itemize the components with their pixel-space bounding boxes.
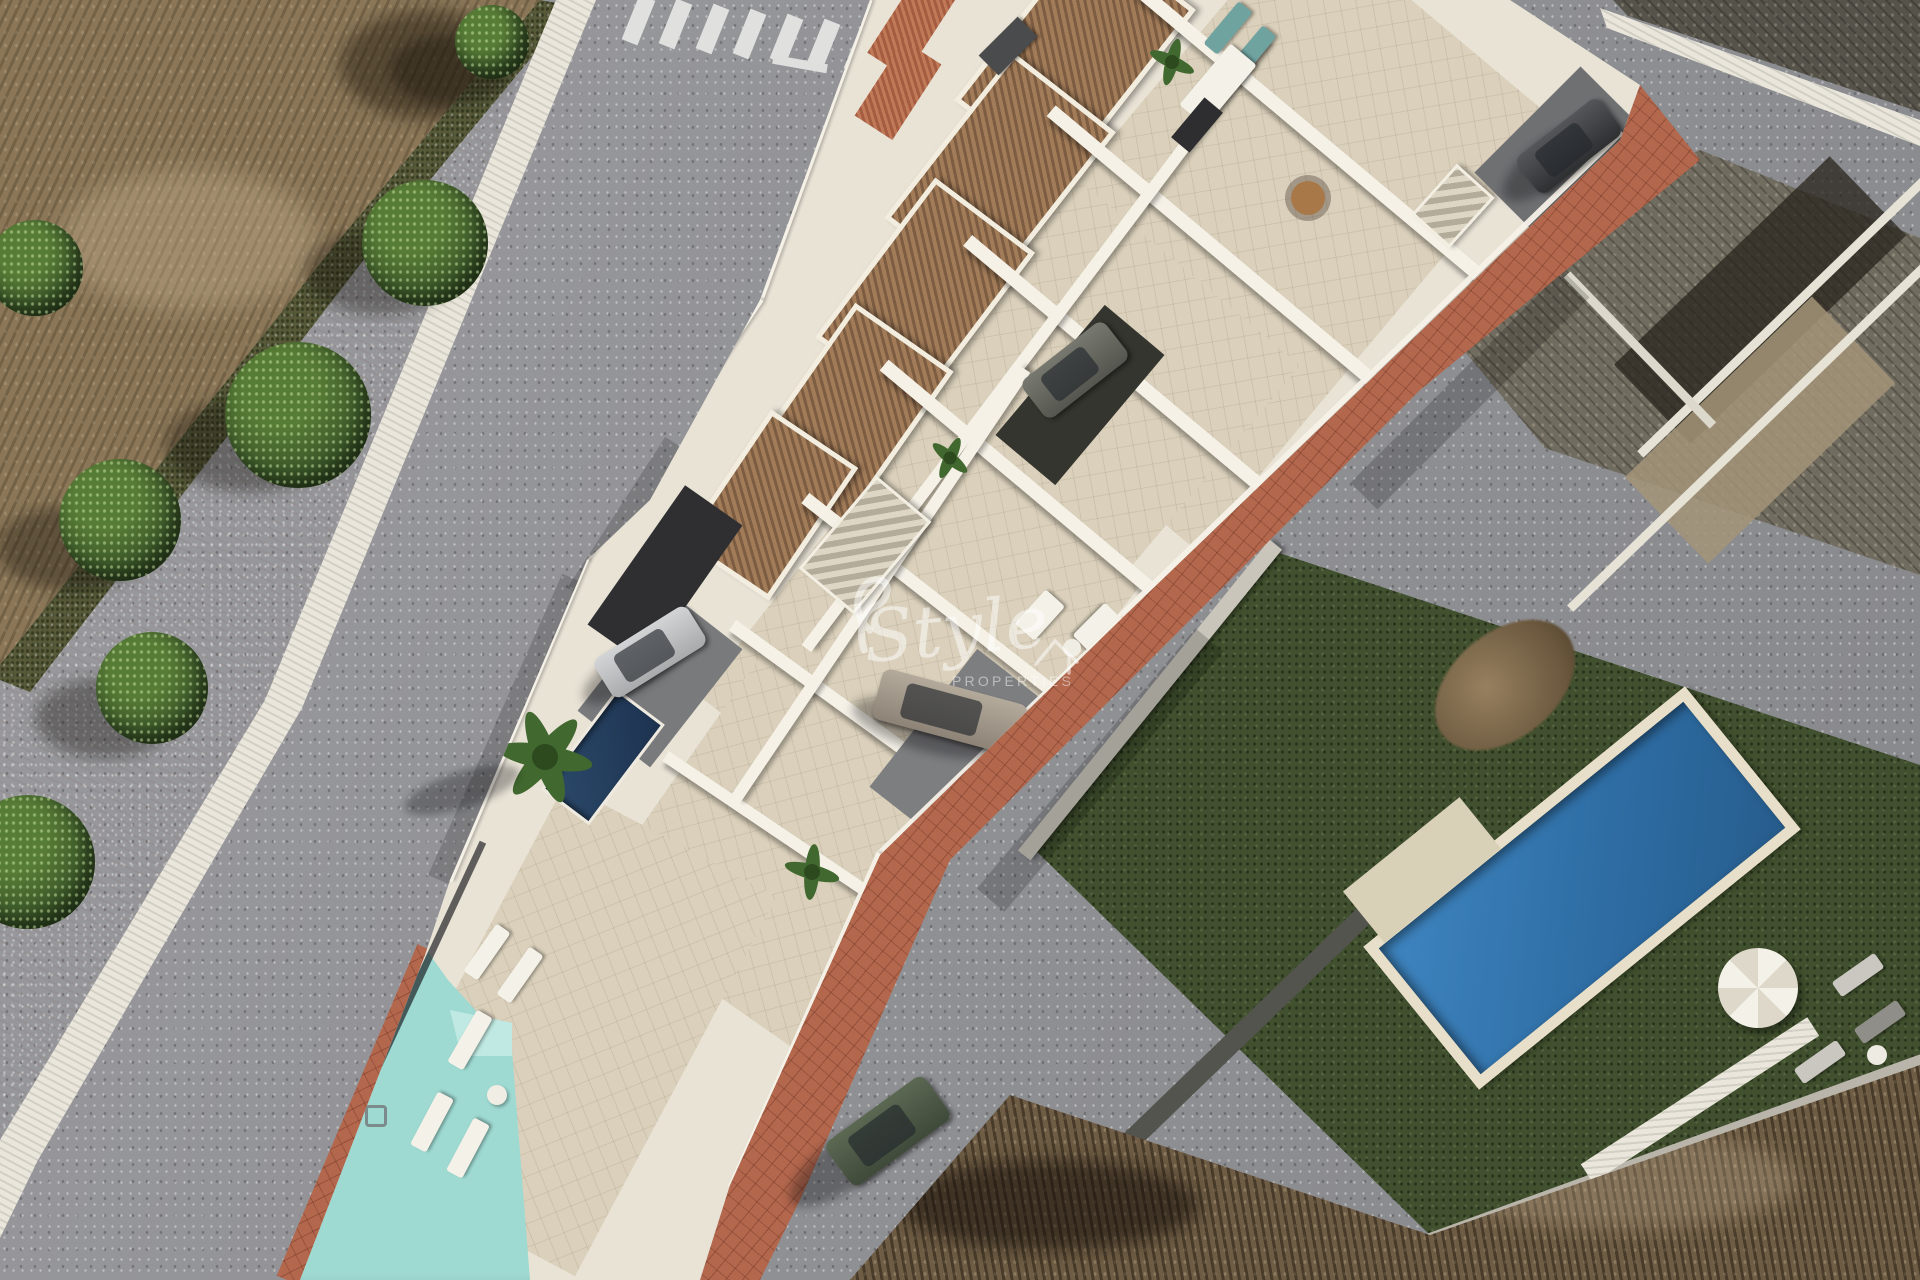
aerial-render-scene: Style PROPERTIES <box>0 0 1920 1280</box>
pool-ladder <box>365 1105 387 1127</box>
palm-plant <box>782 842 842 902</box>
side-table <box>487 1085 507 1105</box>
watermark-script: Style <box>860 579 1051 679</box>
crosswalk-stripe <box>696 4 730 55</box>
street-tree <box>59 459 181 581</box>
street-tree <box>455 5 529 79</box>
crosswalk-stripe <box>622 0 656 45</box>
crosswalk-stripe <box>733 9 767 60</box>
dirt-light-patch <box>60 170 320 310</box>
street-tree <box>225 342 371 488</box>
palm-plant <box>926 434 974 482</box>
watermark-caps: PROPERTIES <box>952 673 1074 689</box>
round-dining-table <box>1291 181 1325 215</box>
watermark: Style PROPERTIES <box>840 566 1110 706</box>
tiled-roof-edge <box>855 40 942 140</box>
dirt-dark-patch <box>900 1160 1200 1250</box>
palm-plant <box>1146 36 1198 88</box>
crosswalk-stripe <box>659 0 693 49</box>
street-tree <box>362 180 488 306</box>
street-tree <box>96 632 208 744</box>
side-table <box>1867 1045 1887 1065</box>
white-parasol <box>1718 948 1798 1028</box>
